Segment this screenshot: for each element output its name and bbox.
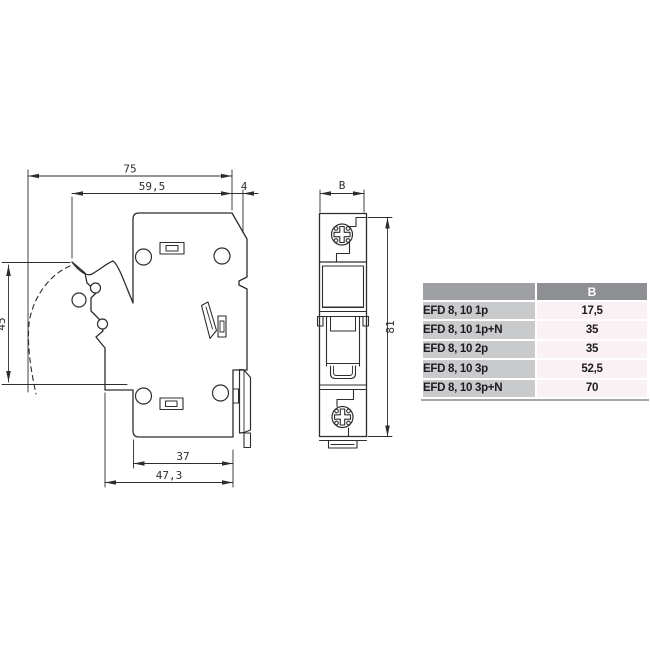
top-hole-left (136, 249, 152, 265)
model-cell: EFD 8, 10 3p+N (423, 380, 535, 397)
front-view-drawing: B 81 (318, 179, 398, 448)
model-cell: EFD 8, 10 2p (423, 341, 535, 358)
model-cell: EFD 8, 10 3p (423, 360, 535, 377)
top-slot-inner (166, 246, 178, 252)
front-upper-seam (337, 243, 350, 262)
front-lower-seam (337, 390, 354, 407)
din-clip-tab (244, 433, 251, 448)
bottom-slot-inner (166, 401, 178, 407)
din-clip (240, 370, 251, 434)
bottom-hole-left (136, 388, 152, 404)
dim-height-81: 81 (368, 218, 397, 437)
carrier-tab-right (363, 317, 369, 327)
bottom-slot-outer (160, 398, 183, 410)
top-slot-outer (160, 243, 184, 255)
top-hole-right (214, 248, 230, 264)
b-value-cell: 52,5 (537, 360, 647, 377)
table-header-empty (423, 283, 535, 300)
model-cell: EFD 8, 10 1p+N (423, 321, 535, 338)
dim-total-depth: 75 (28, 163, 232, 393)
seal-blade (202, 302, 217, 339)
latch-pin-lower (98, 319, 108, 329)
dim-base-total-width: 47,3 (105, 393, 233, 487)
catalog-page: 75 59,5 4 45 (0, 0, 650, 650)
table-header-row: B (423, 283, 647, 300)
lever-swing-arc (28, 266, 70, 394)
dim-label-75: 75 (123, 163, 136, 176)
side-window-outer (218, 316, 226, 337)
dim-label-37: 37 (176, 450, 189, 463)
b-value-cell: 70 (537, 380, 647, 397)
table-header-b: B (537, 283, 647, 300)
lower-terminal-screw (332, 407, 353, 428)
table-row: EFD 8, 10 1p+N 35 (423, 321, 647, 338)
latch-pin-upper (91, 283, 101, 293)
table-row: EFD 8, 10 3p+N 70 (423, 380, 647, 397)
b-value-cell: 35 (537, 321, 647, 338)
carrier-window (323, 266, 364, 307)
dim-label-81: 81 (384, 320, 397, 333)
model-cell: EFD 8, 10 1p (423, 302, 535, 319)
table-row: EFD 8, 10 1p 17,5 (423, 302, 647, 319)
dim-label-59-5: 59,5 (139, 180, 166, 193)
dim-din-offset: 4 (232, 180, 258, 233)
carrier-tab-left (318, 317, 324, 327)
bottom-hole-right (213, 385, 229, 401)
dim-label-45: 45 (0, 317, 8, 330)
side-view-drawing: 75 59,5 4 45 (0, 163, 258, 488)
b-value-cell: 35 (537, 341, 647, 358)
dim-base-width: 37 (134, 440, 234, 487)
dim-label-4: 4 (241, 180, 248, 193)
din-clip-detail (233, 389, 239, 403)
dimension-table: B EFD 8, 10 1p 17,5 EFD 8, 10 1p+N 35 EF… (421, 281, 649, 401)
dim-width-b: B (320, 179, 364, 212)
latch-hole (72, 293, 86, 307)
dim-label-47-3: 47,3 (156, 469, 183, 482)
table-row: EFD 8, 10 2p 35 (423, 341, 647, 358)
carrier-cup-inner (334, 366, 353, 376)
dim-label-b: B (339, 179, 346, 192)
upper-terminal-screw (332, 224, 353, 245)
b-value-cell: 17,5 (537, 302, 647, 319)
carrier-cup-outer (331, 366, 356, 379)
dim-upper-depth: 59,5 (72, 180, 232, 258)
side-window-inner (220, 321, 224, 332)
table-row: EFD 8, 10 3p 52,5 (423, 360, 647, 377)
